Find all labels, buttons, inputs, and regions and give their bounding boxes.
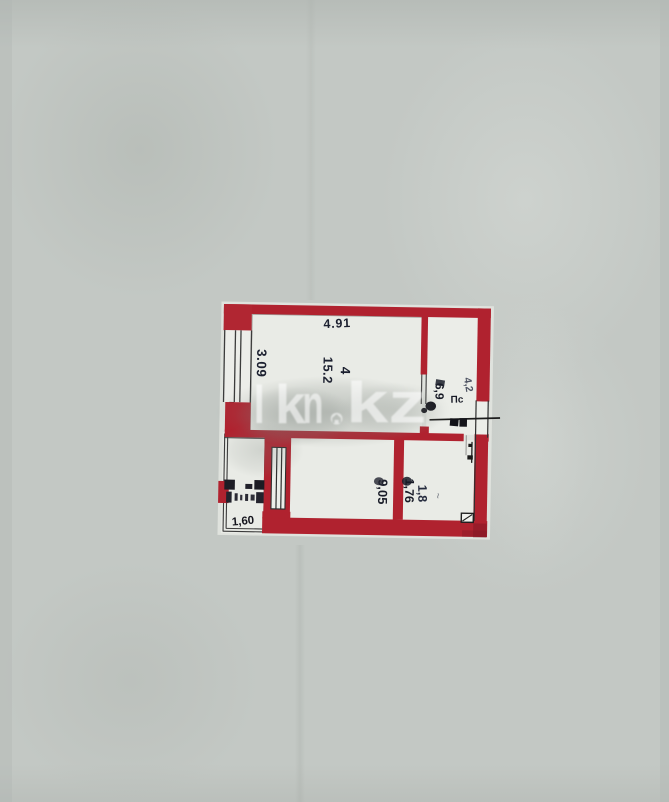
svg-text:1,8: 1,8 — [415, 485, 429, 503]
svg-text:~: ~ — [432, 493, 443, 499]
svg-text:k: k — [275, 373, 306, 435]
svg-text:1,60: 1,60 — [231, 515, 254, 529]
svg-text:kz: kz — [346, 372, 427, 436]
svg-text:3.09: 3.09 — [254, 349, 269, 378]
svg-text:4.91: 4.91 — [323, 316, 351, 331]
svg-text:4,2: 4,2 — [461, 377, 475, 393]
svg-text:Пс: Пс — [451, 395, 464, 406]
svg-text:n: n — [303, 373, 324, 435]
